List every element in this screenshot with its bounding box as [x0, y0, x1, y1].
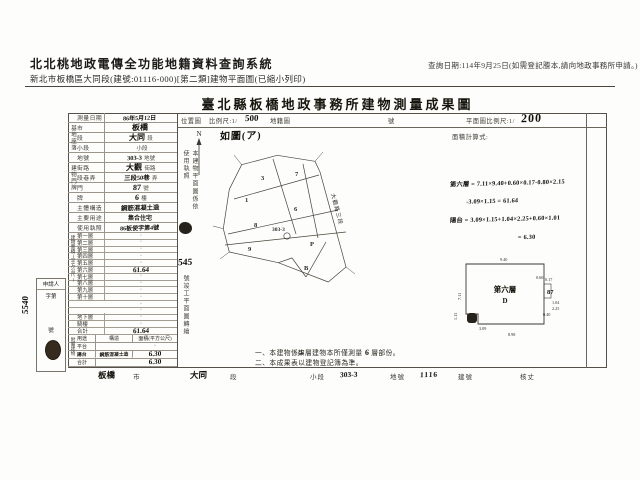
license-number: 545 — [178, 258, 193, 268]
svg-text:1: 1 — [245, 197, 248, 204]
svg-text:1.04: 1.04 — [552, 300, 560, 305]
footer-building-no-label: 建號 — [458, 371, 473, 381]
sketch-reference: 如圖(ア) — [220, 126, 262, 142]
system-title: 北北桃地政電傳全功能地籍資料查詢系統 — [30, 55, 273, 72]
cadastral-map: 3 7 1 6 8 303-3 9 P B 大觀路三段 — [198, 142, 363, 297]
svg-text:303-3: 303-3 — [272, 227, 285, 233]
group-label-annex: 附屬建物 — [69, 337, 77, 367]
area-calculation: 第六層 = 7.11×9.40+0.60×0.17-0.80×2.15 -3.0… — [450, 172, 585, 244]
scale-value: 500 — [245, 113, 259, 123]
applicant-label: 申請人 — [37, 279, 65, 290]
scanned-survey-document: 北北桃地政電傳全功能地籍資料查詢系統 查詢日期:114年9月25日(如需登記謄本… — [0, 0, 640, 480]
floor-plan: 9.40 7.11 8.98 0.17 1.04 2.25 0.40 1.15 … — [448, 254, 563, 349]
stamp-icon — [467, 313, 477, 323]
svg-text:0.17: 0.17 — [545, 277, 552, 282]
svg-text:8: 8 — [254, 222, 258, 229]
receipt-no-suffix: 號 — [37, 300, 65, 334]
floor-rows: 第一層 · 第二層 · 第三層 · 第四層 · — [68, 233, 177, 335]
calc-line: -3.09×1.15 = 61.64 — [466, 197, 519, 205]
header-divider — [25, 86, 615, 87]
svg-text:9: 9 — [248, 246, 252, 253]
annex-header-row: 用途 構造 面積(平方公尺) — [68, 335, 177, 343]
document-subtitle: 新北市板橋區大同段(建號:01116-000)[第二類]建物平面圖(已縮小列印) — [30, 73, 306, 85]
svg-text:7: 7 — [295, 171, 299, 178]
svg-text:1.15: 1.15 — [453, 313, 458, 320]
receipt-no-prefix: 字第 — [37, 290, 65, 300]
group-label-area: 建物面積(平方公尺) — [69, 235, 77, 335]
group-label-door: 建物門牌 — [69, 165, 77, 205]
plan-unit-label: D — [502, 297, 507, 305]
svg-text:2.25: 2.25 — [552, 306, 559, 311]
footer-subsection-label: 小段 — [310, 371, 325, 381]
footer-lot-value: 303-3 — [340, 370, 358, 379]
plan-scale-label: 平面圖比例尺:1/ — [466, 116, 515, 125]
svg-text:P: P — [310, 241, 314, 248]
query-date: 查詢日期:114年9月25日(如需登記謄本,請向地政事務所申請。) — [428, 60, 638, 71]
svg-text:9.40: 9.40 — [500, 257, 507, 262]
svg-text:3.09: 3.09 — [479, 326, 486, 331]
receipt-number: 5540 — [20, 296, 30, 315]
svg-text:6: 6 — [294, 206, 298, 213]
calc-line: = 6.30 — [518, 234, 536, 241]
footer-lot-label: 地號 — [390, 371, 405, 381]
transcription-note-bottom: 號竣工平面圖轉繪 — [181, 275, 190, 363]
main-rows: 測量日期 86年5月12日 市 板橋 段 大同段 小段 小段 — [68, 113, 177, 233]
svg-text:3: 3 — [261, 175, 265, 182]
svg-text:N: N — [196, 130, 201, 138]
svg-text:B: B — [304, 265, 309, 272]
annex-row: 合計 6.30 — [68, 359, 177, 367]
calc-line: 陽台 = 3.09×1.15+1.04×2.25+0.60×1.01 — [450, 213, 561, 225]
sheet-no-label: 號 — [388, 116, 395, 125]
footer-section-label: 段 — [230, 371, 238, 381]
inner-vertical-line — [586, 113, 587, 368]
area-calc-label: 面積計算式: — [452, 132, 488, 141]
note-line-2: 二、本成果表以建物登記簿為準。 — [255, 357, 363, 367]
scale-label: 比例尺:1/ — [209, 116, 238, 125]
footer-city-value: 板橋 — [98, 369, 116, 381]
svg-text:8.98: 8.98 — [508, 332, 515, 337]
location-map-label: 位置圖 — [181, 116, 201, 125]
cadastral-map-label: 地籍圖 — [270, 116, 290, 125]
annex-rows: 平台 · 陽台 鋼筋混凝土造 6.30 合計 6.30 — [68, 343, 177, 367]
svg-text:7.11: 7.11 — [457, 293, 462, 300]
plan-house-number: 87 — [547, 289, 554, 296]
svg-text:0.40: 0.40 — [543, 312, 550, 317]
svg-text:0.60: 0.60 — [536, 275, 543, 280]
stamp-icon — [179, 222, 192, 234]
footer-check-label: 核丈 — [520, 371, 535, 381]
group-label-site: 基地座落 — [69, 125, 77, 165]
left-table: 測量日期 86年5月12日 市 板橋 段 大同段 小段 小段 — [68, 113, 178, 368]
plan-floor-label: 第六層 — [494, 284, 517, 294]
floor-row: 合計 61.64 — [68, 328, 177, 335]
footer-building-no-value: 1116 — [420, 370, 439, 379]
note-line-1: 一、本建物係柒層建物本所僅測量 6 層部份。 — [255, 347, 400, 357]
calc-line: 第六層 = 7.11×9.40+0.60×0.17-0.80×2.15 — [450, 176, 565, 188]
plan-scale-value: 200 — [521, 111, 543, 127]
seal-icon — [45, 340, 61, 360]
footer-section-value: 大同 — [190, 369, 208, 381]
footer-city-label: 市 — [133, 371, 141, 381]
street-name: 大觀路三段 — [329, 192, 345, 225]
